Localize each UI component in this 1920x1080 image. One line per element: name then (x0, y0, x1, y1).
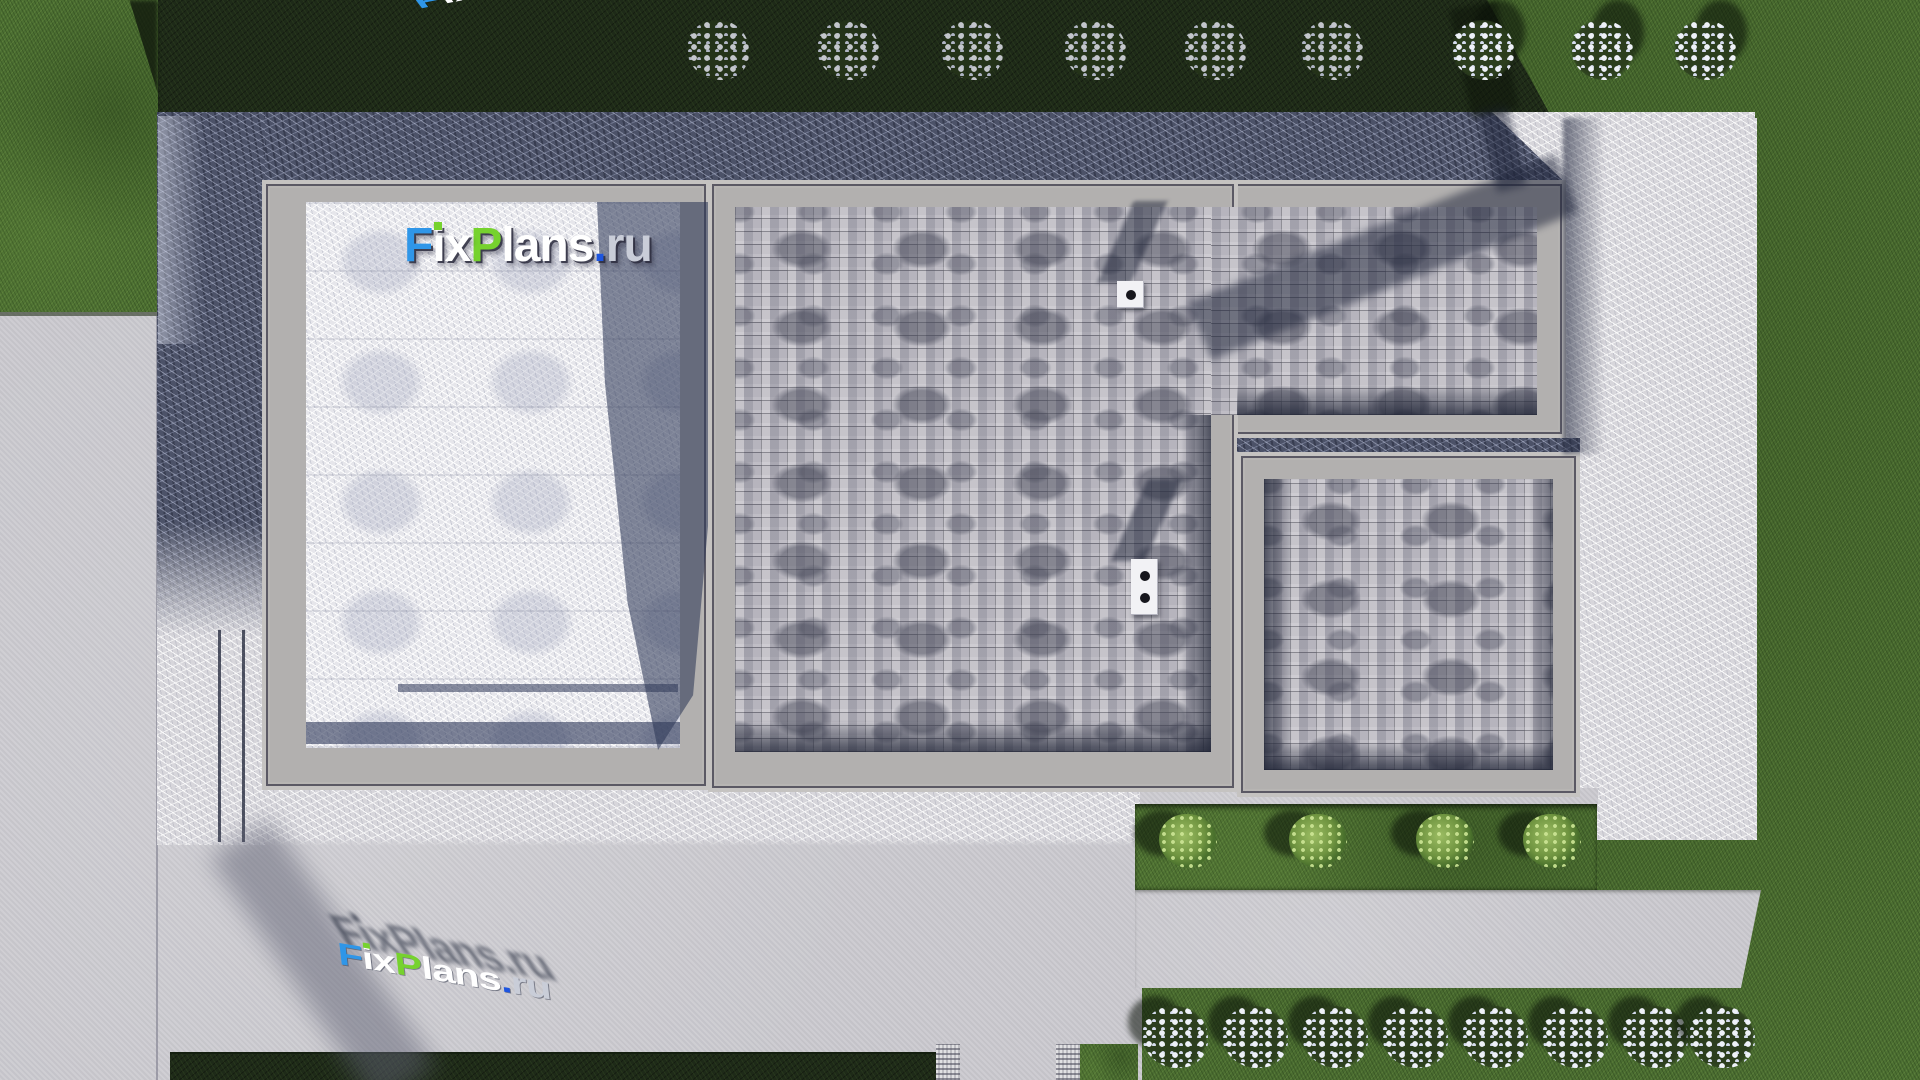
watermark-logo: FixPlans.ru (404, 222, 652, 270)
flowering-shrub (687, 20, 749, 80)
step-line-2 (242, 630, 245, 842)
flowering-shrub (1302, 1006, 1368, 1068)
terrace-stripe-wide (306, 722, 680, 744)
step-line-1 (218, 630, 221, 842)
logo-letters-ix: ix (360, 942, 396, 979)
roof-garage (1264, 479, 1553, 770)
roof-shade-bottom (735, 720, 1211, 752)
roof-gap-strip (1237, 438, 1580, 452)
green-shrub (1289, 814, 1347, 868)
flowering-shrub (1571, 20, 1633, 80)
roof-shade-notch (1181, 415, 1211, 752)
bottom-lawn-patch (1076, 1044, 1138, 1080)
flowering-shrub (1462, 1006, 1528, 1068)
logo-letters-ix: ix (432, 222, 470, 270)
garage-shade-left (1264, 479, 1292, 770)
vent-hole (1126, 290, 1136, 300)
chimney-vent (1131, 559, 1158, 615)
walkway (1135, 890, 1761, 988)
logo-dot: . (593, 219, 605, 272)
site-plan-render: FixPlans.ru FixPlans.ru FixPlans.ru FixP… (0, 0, 1920, 1080)
chimney-vent (1117, 281, 1144, 308)
flowering-shrub (1064, 20, 1126, 80)
logo-letters-ru: ru (509, 965, 552, 1007)
flowering-shrub (1689, 1006, 1755, 1068)
roof-shade-wing-bottom (1237, 385, 1537, 415)
green-shrub (1523, 814, 1581, 868)
garage-shade-bottom (1264, 742, 1553, 770)
flowering-shrub (1382, 1006, 1448, 1068)
south-concrete-band (157, 788, 1142, 846)
green-shrub (1416, 814, 1474, 868)
north-concrete-shadow (157, 112, 1602, 182)
logo-letters-ru: ru (606, 219, 652, 272)
garage-shade-right (1529, 479, 1553, 770)
logo-letters-lans: lans (501, 219, 593, 272)
flowering-shrub (1542, 1006, 1608, 1068)
parapet-side-shadow (1563, 118, 1605, 454)
flowering-shrub (1674, 20, 1736, 80)
terrace-stripe-thin (398, 684, 678, 692)
flowering-shrub (941, 20, 1003, 80)
logo-letter-f: F (404, 219, 432, 272)
logo-letter-p: P (470, 219, 501, 272)
flowering-shrub (1301, 20, 1363, 80)
lawn-edge-line (0, 312, 158, 316)
flowering-shrub (1184, 20, 1246, 80)
flowering-shrub (1222, 1006, 1288, 1068)
flowering-shrub (1452, 20, 1514, 80)
flowering-shrub (1142, 1006, 1208, 1068)
bottom-lawn-sliver (170, 1052, 940, 1080)
gravel-strip-right (1056, 1044, 1080, 1080)
west-light-sliver (158, 116, 204, 344)
vent-hole (1140, 571, 1150, 581)
flowering-shrub (817, 20, 879, 80)
vent-hole (1140, 593, 1150, 603)
lawn-topleft (0, 0, 158, 318)
gravel-strip-left (936, 1044, 960, 1080)
green-shrub (1159, 814, 1217, 868)
